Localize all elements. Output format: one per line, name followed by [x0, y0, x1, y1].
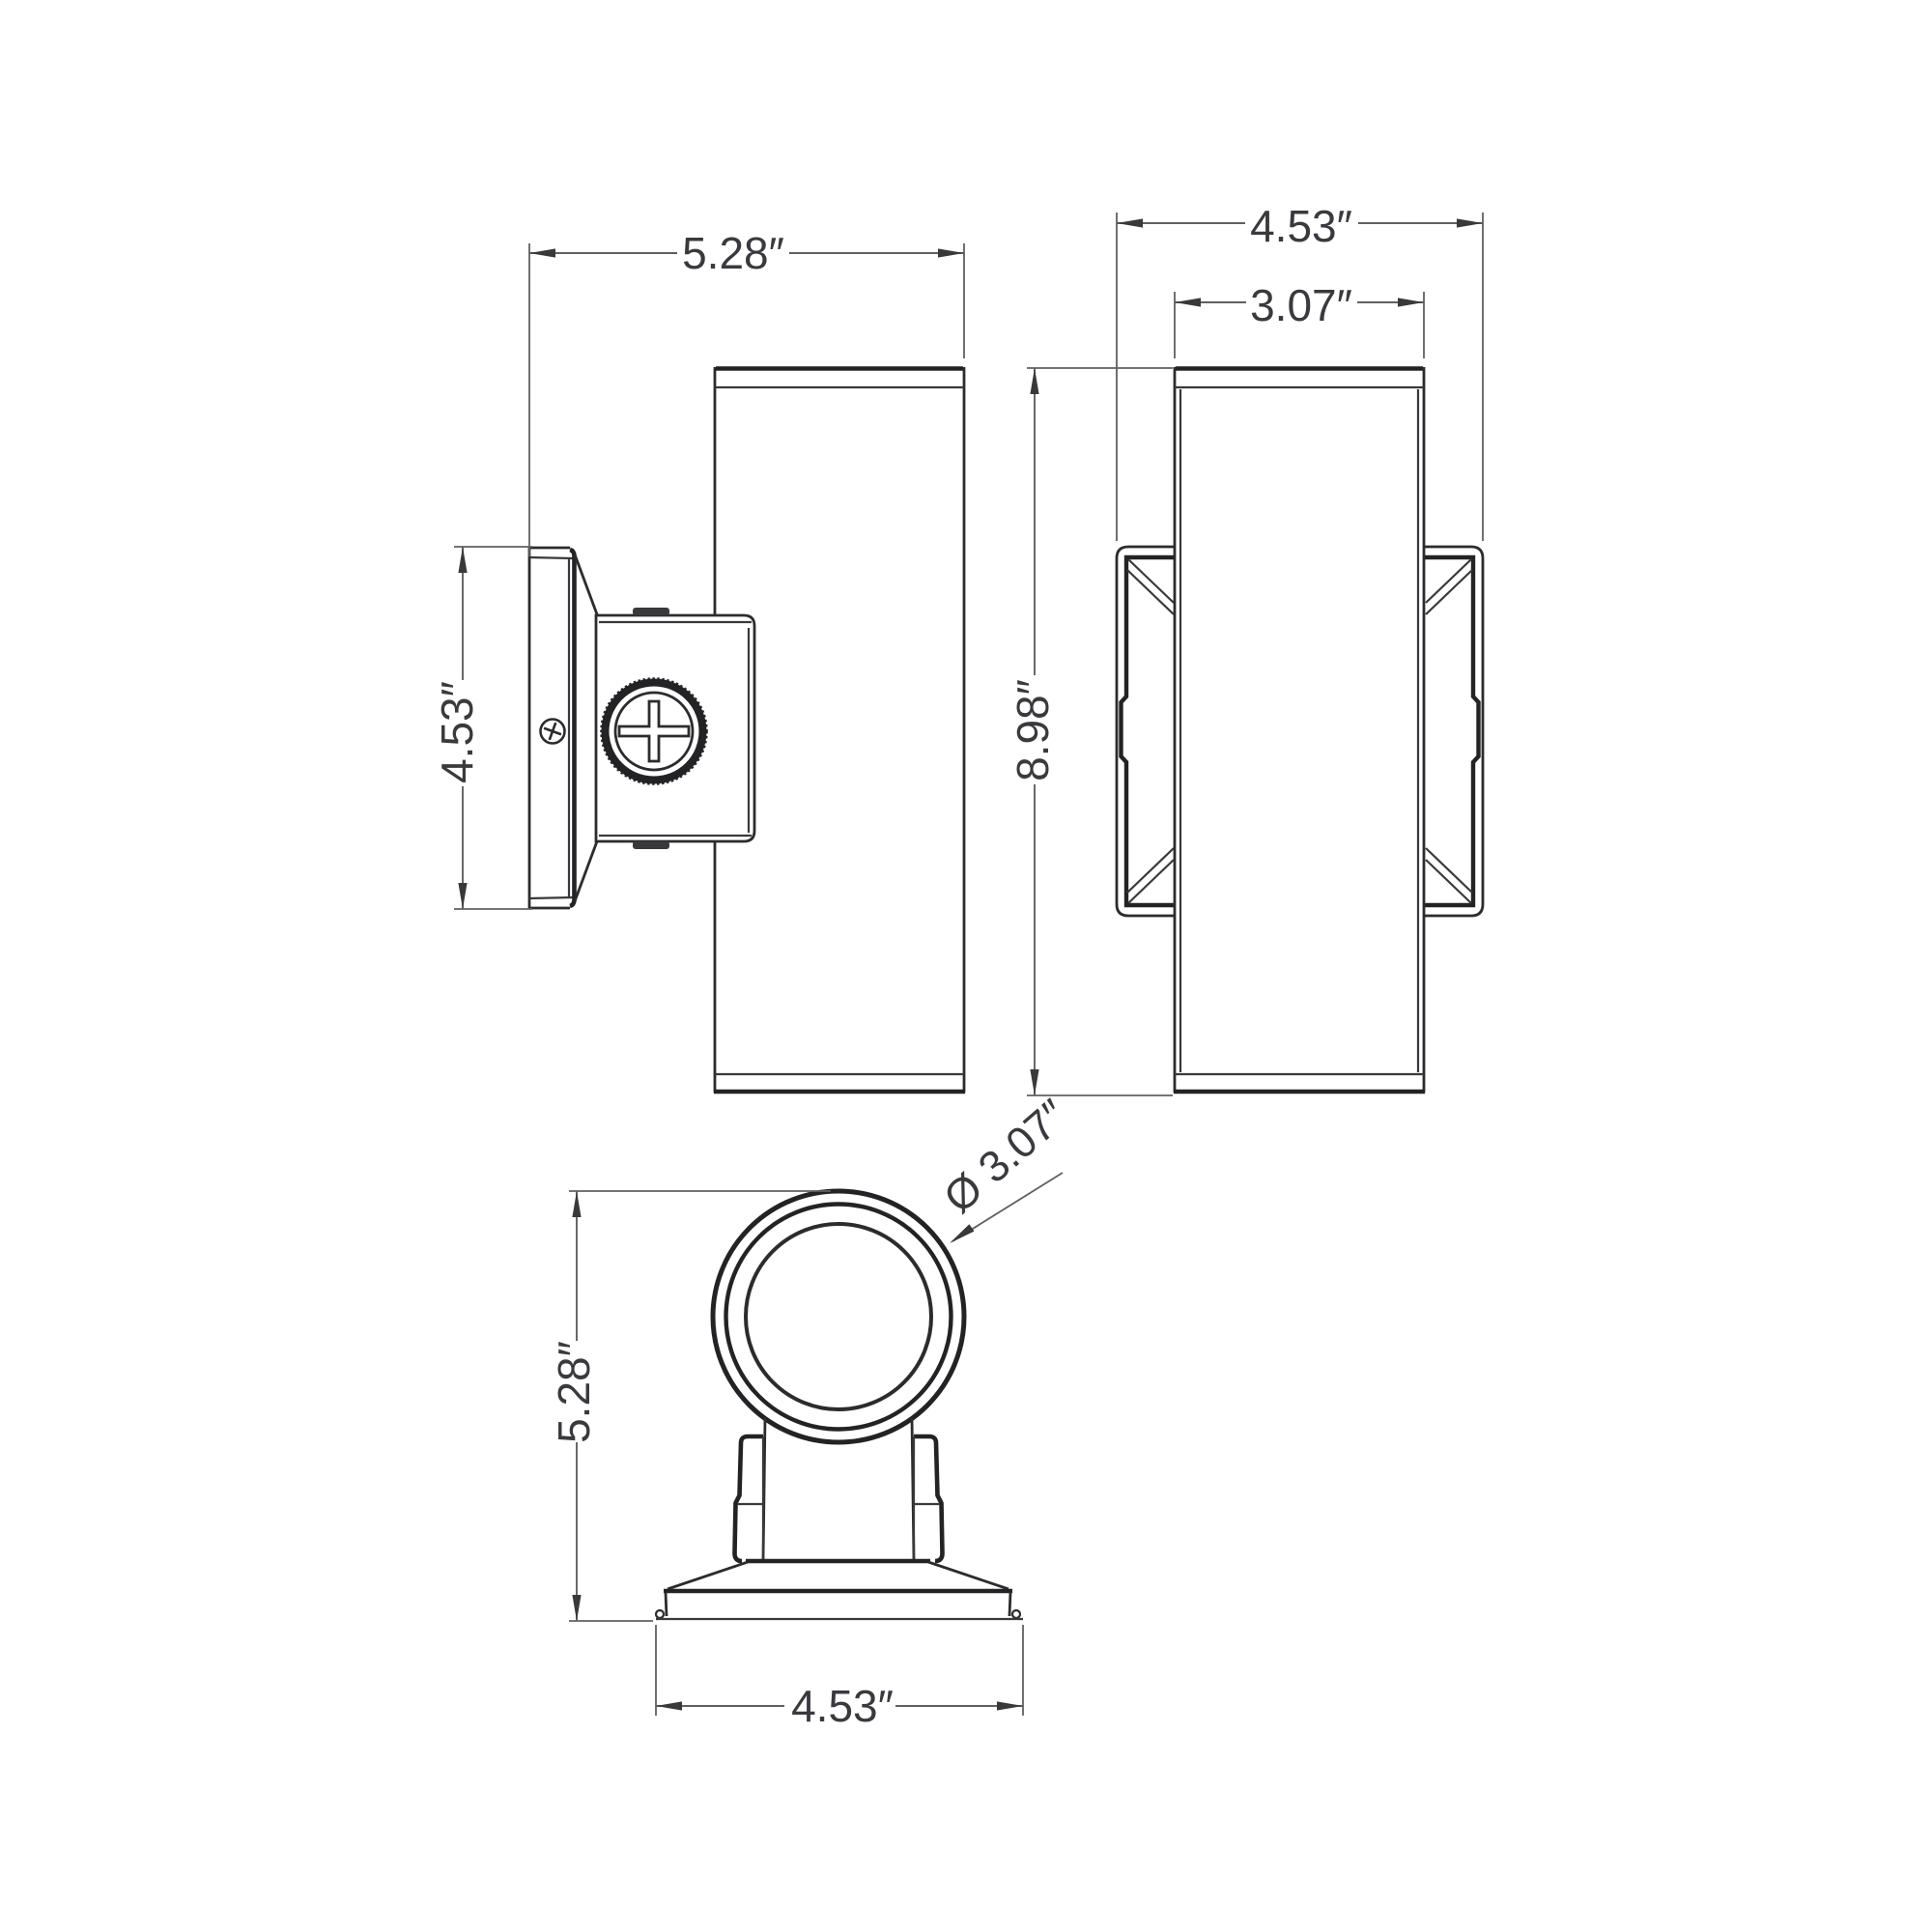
svg-text:4.53″: 4.53″ — [791, 1681, 894, 1731]
svg-text:4.53″: 4.53″ — [432, 681, 482, 783]
svg-text:3.07″: 3.07″ — [1250, 280, 1352, 330]
svg-text:4.53″: 4.53″ — [1250, 201, 1352, 251]
svg-text:5.28″: 5.28″ — [682, 228, 784, 278]
svg-text:5.28″: 5.28″ — [549, 1341, 599, 1443]
svg-text:8.98″: 8.98″ — [1008, 679, 1058, 781]
